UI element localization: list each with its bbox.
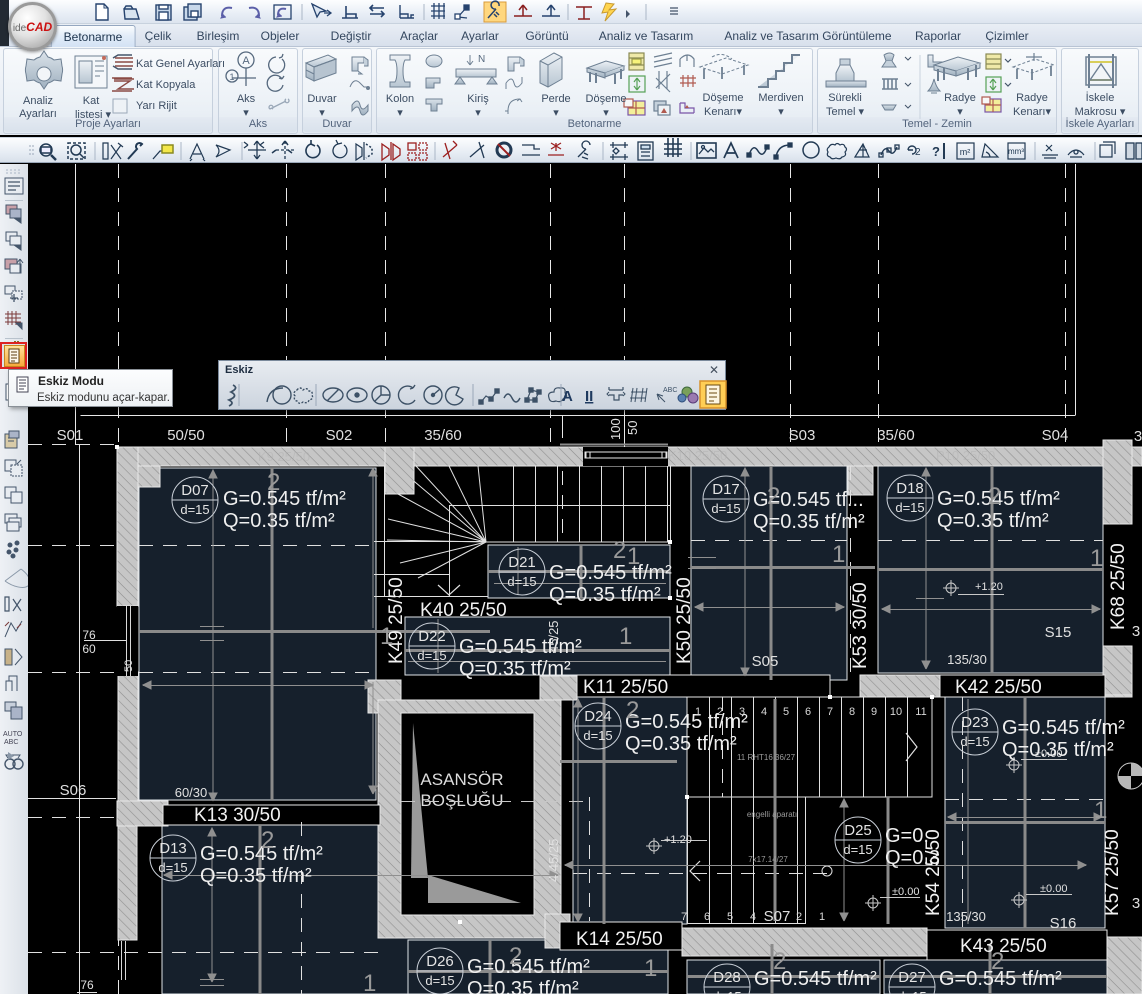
svg-text:ABC: ABC [4,739,18,746]
svg-text:K54 25/50: K54 25/50 [923,829,944,916]
svg-text:engelli aparatı: engelli aparatı [747,810,797,819]
svg-text:D18: D18 [896,480,924,497]
svg-text:Q=0.35 tf/m²: Q=0.35 tf/m² [459,658,571,680]
svg-text:76: 76 [82,628,96,642]
svg-text:2: 2 [717,706,723,718]
svg-text:2: 2 [509,943,522,970]
svg-text:d=15: d=15 [507,574,536,589]
svg-text:d=15: d=15 [180,502,209,517]
svg-text:S04: S04 [1042,427,1069,444]
svg-text:D22: D22 [418,628,446,645]
svg-text:±0.00: ±0.00 [892,886,919,898]
svg-text:2: 2 [626,697,639,724]
svg-text:1: 1 [644,955,657,982]
svg-text:1: 1 [619,623,632,650]
svg-text:Q=0.35 tf/m²: Q=0.35 tf/m² [937,510,1049,532]
svg-text:P10 25/50: P10 25/50 [936,448,995,463]
svg-text:1: 1 [1090,545,1103,572]
svg-text:K40 25/50: K40 25/50 [420,600,507,621]
svg-text:d=15: d=15 [843,842,872,857]
svg-text:3: 3 [1132,623,1140,640]
svg-text:S06: S06 [60,782,87,799]
svg-text:K11 25/50: K11 25/50 [583,677,668,698]
svg-text:K10 25/50: K10 25/50 [668,448,727,463]
svg-text:3: 3 [1132,895,1140,912]
svg-text:9: 9 [871,706,877,718]
svg-text:2: 2 [767,483,780,510]
svg-text:?: ? [932,144,940,159]
svg-text:D23: D23 [961,714,989,731]
svg-text:5: 5 [727,911,733,923]
svg-text:Q=0.35 tf/m²: Q=0.35 tf/m² [223,510,335,532]
svg-text:K13 30/50: K13 30/50 [194,805,281,826]
svg-text:Q=0.35 tf/m²: Q=0.35 tf/m² [753,511,865,533]
svg-text:K68 25/50: K68 25/50 [1108,543,1129,630]
svg-text:2: 2 [796,911,802,923]
svg-text:1: 1 [819,911,825,923]
svg-text:S16: S16 [1050,915,1077,932]
svg-text:50: 50 [123,660,135,672]
svg-text:G=0.545 tf/m²: G=0.545 tf/m² [1002,717,1125,739]
svg-text:7x17.14/27: 7x17.14/27 [748,855,788,864]
svg-text:76: 76 [80,978,94,992]
svg-text:S03: S03 [789,427,816,444]
svg-text:2: 2 [773,948,786,975]
svg-text:3: 3 [739,706,745,718]
svg-text:7: 7 [681,911,687,923]
svg-text:D13: D13 [159,840,187,857]
svg-text:135/30: 135/30 [946,909,986,924]
svg-text:45/25: 45/25 [546,620,561,653]
svg-text:2: 2 [915,147,921,158]
svg-text:S05: S05 [752,653,779,670]
svg-text:1: 1 [832,541,845,568]
svg-text:Q=0.35 tf/m²: Q=0.35 tf/m² [467,978,579,994]
svg-text:Q=0.35 tf/m²: Q=0.35 tf/m² [549,584,661,606]
svg-text:100: 100 [608,418,623,440]
svg-text:5: 5 [783,706,789,718]
svg-text:S01: S01 [57,427,84,444]
svg-text:Q=0.35 tf/m²: Q=0.35 tf/m² [625,733,737,755]
svg-text:Q=0.35 tf/m²: Q=0.35 tf/m² [1002,739,1114,761]
svg-text:6: 6 [805,706,811,718]
svg-text:60/30: 60/30 [175,785,208,800]
svg-text:D27: D27 [898,969,926,986]
svg-text:m²: m² [960,147,971,157]
svg-text:II: II [585,388,593,405]
svg-text:6: 6 [704,911,710,923]
svg-text:2: 2 [613,537,626,564]
svg-text:ABC: ABC [663,387,677,394]
svg-text:±0.00: ±0.00 [1040,883,1067,895]
svg-text:G=0.545 tf/m²: G=0.545 tf/m² [459,636,582,658]
svg-text:50: 50 [625,421,640,435]
svg-text:1: 1 [627,543,640,570]
svg-text:D17: D17 [712,481,740,498]
svg-text:G=0.545 tf/m²: G=0.545 tf/m² [467,956,590,978]
svg-text:G=0.545 tf/m²: G=0.545 tf/m² [549,562,672,584]
svg-text:N: N [478,54,485,65]
svg-text:K14 25/50: K14 25/50 [576,929,663,950]
svg-text:K57 25/50: K57 25/50 [1102,829,1123,916]
svg-text:8: 8 [849,706,855,718]
svg-text:K49 25/50: K49 25/50 [386,577,407,664]
svg-text:1: 1 [1094,797,1107,824]
svg-text:d=15: d=15 [712,989,741,994]
svg-text:d=15: d=15 [158,860,187,875]
svg-text:D25: D25 [844,822,872,839]
svg-text:K9 25/50: K9 25/50 [258,449,310,464]
svg-text:S07: S07 [764,908,791,925]
svg-text:135/30: 135/30 [947,652,987,667]
svg-text:Q=0.35 tf/m²: Q=0.35 tf/m² [200,865,312,887]
svg-text:4: 4 [761,706,767,718]
svg-text:d=15: d=15 [583,728,612,743]
svg-text:+1.20: +1.20 [975,581,1003,593]
svg-text:3: 3 [1134,428,1142,445]
svg-text:35/60: 35/60 [424,427,462,444]
svg-text:d=15: d=15 [417,648,446,663]
svg-text:G=0.545 tf/m²: G=0.545 tf/m² [625,711,748,733]
svg-text:4 45/25: 4 45/25 [546,839,561,882]
svg-text:1: 1 [363,970,376,994]
svg-text:AUTO: AUTO [3,731,23,738]
svg-text:d=15: d=15 [425,973,454,988]
svg-text:35/60: 35/60 [877,427,915,444]
svg-text:K50 25/50: K50 25/50 [674,577,695,664]
svg-text:4: 4 [750,911,756,923]
svg-text:d=15: d=15 [897,989,926,994]
svg-text:7: 7 [827,706,833,718]
svg-text:BOŞLUĞU: BOŞLUĞU [420,791,503,810]
svg-text:11 RHT16.36/27: 11 RHT16.36/27 [737,753,796,762]
svg-text:S15: S15 [1045,624,1072,641]
svg-text:11: 11 [915,706,926,718]
svg-text:D21: D21 [508,554,536,571]
svg-text:K53 30/50: K53 30/50 [850,582,871,669]
svg-text:60: 60 [82,642,96,656]
svg-text:1: 1 [695,706,701,718]
svg-text:50/50: 50/50 [167,427,205,444]
svg-text:+1.20: +1.20 [664,834,692,846]
svg-text:G=0.545 tf/m²: G=0.545 tf/m² [223,488,346,510]
svg-text:D24: D24 [584,708,612,725]
svg-text:1: 1 [229,72,234,82]
svg-text:D26: D26 [426,953,454,970]
svg-text:d=15: d=15 [711,501,740,516]
svg-text:mm³: mm³ [1008,147,1024,156]
svg-text:d=15: d=15 [895,500,924,515]
svg-text:1: 1 [380,623,393,650]
svg-text:ASANSÖR: ASANSÖR [420,770,503,789]
svg-text:10: 10 [890,706,902,718]
svg-text:S02: S02 [326,427,353,444]
svg-text:2: 2 [988,483,1001,510]
svg-text:d=15: d=15 [960,734,989,749]
svg-text:2: 2 [261,827,274,854]
svg-text:A: A [242,55,250,67]
svg-text:2: 2 [991,948,1004,975]
svg-text:2: 2 [267,469,280,496]
svg-text:A: A [562,388,573,405]
svg-text:D07: D07 [181,482,209,499]
svg-text:D28: D28 [713,969,741,986]
svg-text:K42 25/50: K42 25/50 [955,677,1042,698]
